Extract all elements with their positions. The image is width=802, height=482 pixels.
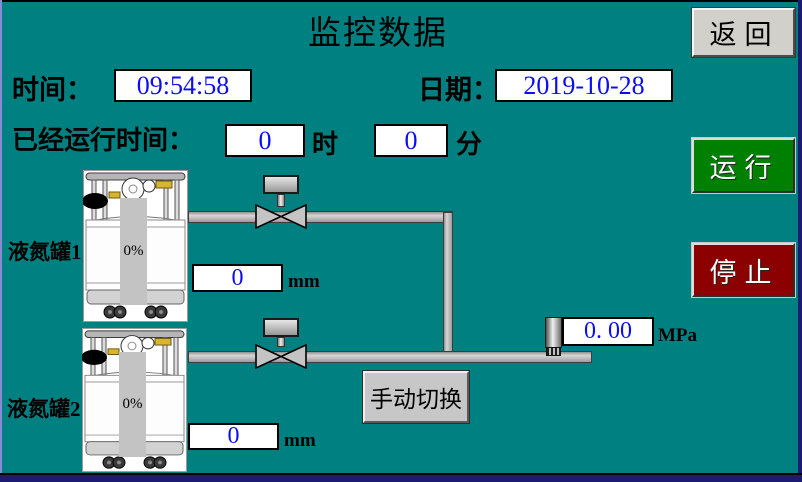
manual-switch-button[interactable]: 手动切换 xyxy=(363,371,469,423)
date-display: 2019-10-28 xyxy=(495,69,673,102)
pressure-sensor-icon xyxy=(545,317,562,348)
runtime-minutes-unit: 分 xyxy=(456,124,482,161)
tank2-level-mm-display: 0 xyxy=(188,423,279,450)
valve1-actuator-icon xyxy=(263,175,299,194)
tank1-level-bar: 0% xyxy=(120,198,147,305)
runtime-minutes-display: 0 xyxy=(374,124,448,157)
tank2-level-bar: 0% xyxy=(119,352,146,457)
screen-edge-left xyxy=(0,0,2,482)
runtime-hours-display: 0 xyxy=(225,124,305,157)
tank2-mm-unit: mm xyxy=(284,430,316,452)
tank2-level-percent: 0% xyxy=(123,396,143,413)
tank1-level-mm-display: 0 xyxy=(192,264,283,292)
tank1-mm-unit: mm xyxy=(288,271,320,293)
screen-edge-top xyxy=(0,0,802,2)
tank2-label: 液氮罐2 xyxy=(7,393,81,423)
runtime-label: 已经运行时间： xyxy=(12,120,194,157)
page-title: 监控数据 xyxy=(308,6,448,54)
pressure-value: 0. 00 xyxy=(584,318,632,345)
tank1-pipe xyxy=(188,211,453,223)
tank1-level-mm-value: 0 xyxy=(232,265,244,292)
valve2-icon xyxy=(255,344,307,369)
pressure-unit: MPa xyxy=(658,325,697,347)
stop-button[interactable]: 停止 xyxy=(692,243,795,297)
pressure-display: 0. 00 xyxy=(562,317,654,346)
runtime-hours-value: 0 xyxy=(259,126,272,156)
screen-edge-right xyxy=(798,0,802,482)
tank1-label: 液氮罐1 xyxy=(8,236,82,266)
pressure-sensor-foot-icon xyxy=(546,347,561,356)
runtime-minutes-value: 0 xyxy=(405,126,418,156)
tank1-level-percent: 0% xyxy=(124,243,144,260)
tank2-pipe xyxy=(188,351,592,363)
junction-pipe-vertical xyxy=(443,212,453,359)
time-display: 09:54:58 xyxy=(114,69,252,102)
back-button[interactable]: 返回 xyxy=(692,8,795,57)
date-value: 2019-10-28 xyxy=(523,71,644,101)
tank2-level-mm-value: 0 xyxy=(228,423,240,450)
runtime-hours-unit: 时 xyxy=(312,124,338,161)
hmi-monitor-screen: 0% 液氮罐1 0 mm 0% 液氮罐2 0 mm xyxy=(0,0,802,482)
time-label: 时间： xyxy=(12,68,93,107)
time-value: 09:54:58 xyxy=(137,71,229,101)
date-label: 日期： xyxy=(418,68,499,107)
screen-edge-bottom xyxy=(0,473,802,482)
valve1-icon xyxy=(255,204,307,229)
run-button[interactable]: 运行 xyxy=(692,138,795,193)
valve2-actuator-icon xyxy=(263,318,299,337)
